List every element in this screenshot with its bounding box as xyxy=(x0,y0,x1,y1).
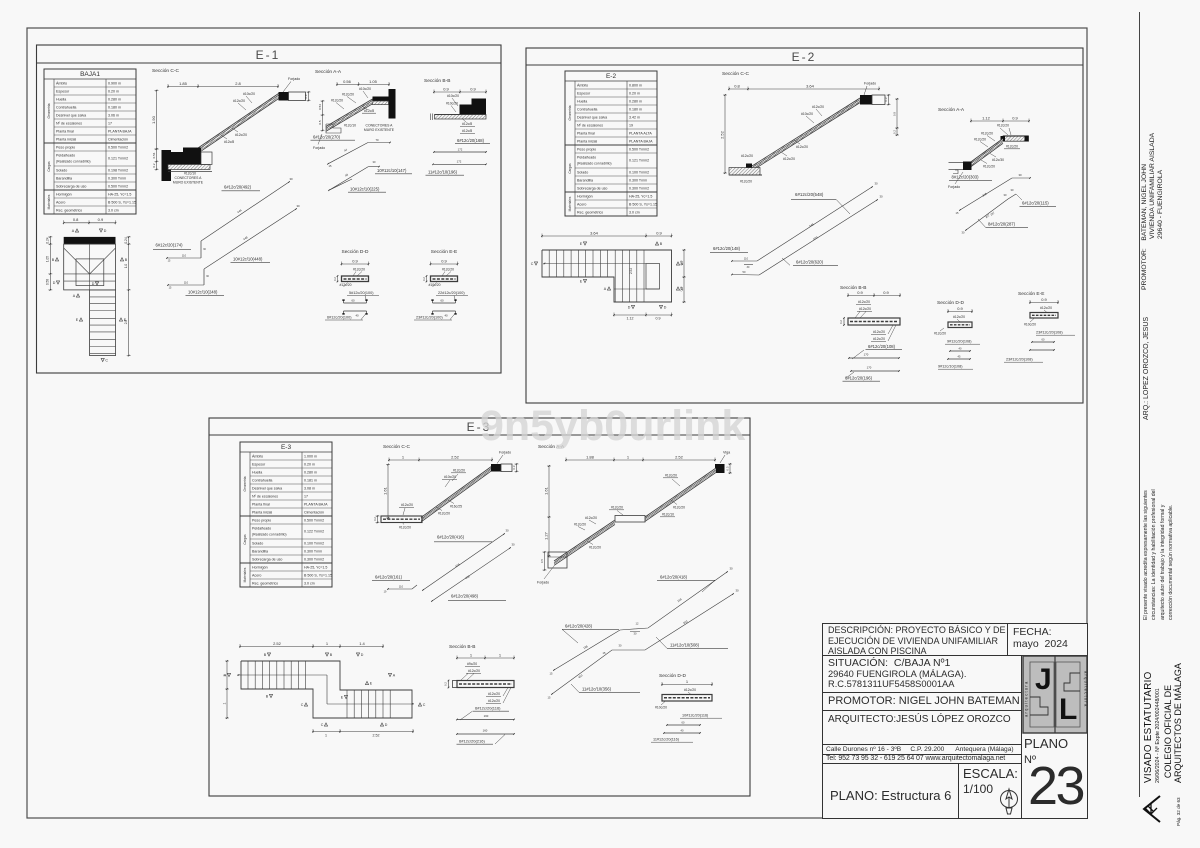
svg-text:PLANTA ALTA: PLANTA ALTA xyxy=(629,132,652,136)
svg-text:Sección C-C: Sección C-C xyxy=(383,444,410,450)
svg-text:0.9: 0.9 xyxy=(656,317,661,321)
svg-text:(Realizado con ladrillo): (Realizado con ladrillo) xyxy=(252,533,287,537)
svg-text:#12c/10: #12c/10 xyxy=(184,172,196,176)
svg-text:C: C xyxy=(105,359,108,363)
svg-text:0.100 Tn/m2: 0.100 Tn/m2 xyxy=(629,171,649,175)
svg-text:Desnivel que salva: Desnivel que salva xyxy=(252,487,282,491)
svg-text:#12c/20: #12c/20 xyxy=(983,165,995,169)
svg-text:#10c/20: #10c/20 xyxy=(359,87,371,91)
svg-text:#12c/20: #12c/20 xyxy=(468,669,480,673)
svg-text:30: 30 xyxy=(747,266,750,269)
svg-text:#12c/20: #12c/20 xyxy=(585,516,597,520)
svg-text:23#12c/20(108): 23#12c/20(108) xyxy=(1036,331,1063,335)
svg-text:1.000 m: 1.000 m xyxy=(304,455,317,459)
svg-text:0.3: 0.3 xyxy=(884,97,888,101)
svg-text:1: 1 xyxy=(686,679,689,684)
svg-text:15: 15 xyxy=(603,651,606,655)
svg-text:Rec. geométrico: Rec. geométrico xyxy=(56,209,82,213)
svg-text:Sobrecarga de uso: Sobrecarga de uso xyxy=(56,185,86,189)
svg-text:15: 15 xyxy=(548,696,551,700)
svg-text:172: 172 xyxy=(457,160,462,164)
svg-text:0.280 m: 0.280 m xyxy=(108,98,121,102)
svg-text:1.61: 1.61 xyxy=(543,486,548,495)
svg-text:60: 60 xyxy=(351,299,355,303)
svg-text:Acero: Acero xyxy=(252,574,261,578)
svg-text:0.198 Tn/m2: 0.198 Tn/m2 xyxy=(108,169,128,173)
svg-text:#12c/20: #12c/20 xyxy=(783,157,795,161)
svg-text:Geometría: Geometría xyxy=(243,476,247,491)
svg-text:40: 40 xyxy=(444,314,448,318)
svg-text:#12c/20: #12c/20 xyxy=(233,99,245,103)
svg-text:Barandilla: Barandilla xyxy=(577,179,593,183)
svg-text:6#12c/20(620): 6#12c/20(620) xyxy=(796,260,824,265)
svg-text:3.0 cm: 3.0 cm xyxy=(629,211,640,215)
svg-text:Planta final: Planta final xyxy=(577,132,595,136)
svg-text:3.0 cm: 3.0 cm xyxy=(108,209,119,213)
svg-text:0.9: 0.9 xyxy=(441,258,447,263)
svg-text:0.2: 0.2 xyxy=(839,320,843,324)
svg-text:#12c/20: #12c/20 xyxy=(981,132,993,136)
svg-text:0.900 m: 0.900 m xyxy=(108,82,121,86)
svg-text:3.42 m: 3.42 m xyxy=(629,116,640,120)
svg-text:6#12c/20(416): 6#12c/20(416) xyxy=(437,535,465,540)
svg-text:#10c/20: #10c/20 xyxy=(446,102,458,106)
svg-text:172: 172 xyxy=(458,147,463,151)
svg-text:30: 30 xyxy=(1018,173,1022,177)
svg-text:0.20 m: 0.20 m xyxy=(629,92,640,96)
svg-text:#10c/20: #10c/20 xyxy=(444,475,456,479)
svg-text:Cargas: Cargas xyxy=(47,161,51,172)
svg-text:3.06 m: 3.06 m xyxy=(108,114,119,118)
svg-text:6#12c/20(108): 6#12c/20(108) xyxy=(868,344,896,349)
svg-text:#12c/20: #12c/20 xyxy=(665,474,677,478)
svg-text:Contrahuella: Contrahuella xyxy=(56,106,76,110)
svg-text:0.300 Tn/m: 0.300 Tn/m xyxy=(304,550,322,554)
svg-text:D: D xyxy=(361,653,364,657)
svg-text:Sección B-B: Sección B-B xyxy=(449,644,475,650)
svg-text:Ámbito: Ámbito xyxy=(577,84,588,88)
svg-text:Nº de escalones: Nº de escalones xyxy=(577,124,603,128)
svg-text:Planta inicial: Planta inicial xyxy=(577,140,597,144)
svg-text:6#12c/20(174): 6#12c/20(174) xyxy=(156,243,184,248)
svg-text:Forjado: Forjado xyxy=(288,77,300,81)
svg-text:Peldañeado: Peldañeado xyxy=(577,156,596,160)
svg-text:0.9: 0.9 xyxy=(352,258,358,263)
svg-text:0.2: 0.2 xyxy=(444,682,448,686)
svg-text:10#12c/10(147): 10#12c/10(147) xyxy=(377,168,407,173)
svg-text:1: 1 xyxy=(222,702,226,704)
svg-text:A: A xyxy=(72,229,75,233)
svg-text:6#12c/20(492): 6#12c/20(492) xyxy=(224,185,252,190)
svg-text:287: 287 xyxy=(989,210,995,216)
svg-text:110: 110 xyxy=(744,256,749,260)
svg-text:0.9: 0.9 xyxy=(679,261,683,266)
svg-text:0.500 Tn/m2: 0.500 Tn/m2 xyxy=(629,148,649,152)
svg-text:1.12: 1.12 xyxy=(982,115,991,120)
svg-text:0.58: 0.58 xyxy=(46,279,50,285)
svg-text:30: 30 xyxy=(373,160,376,164)
svg-text:0.9: 0.9 xyxy=(883,290,889,295)
svg-text:Hormigón: Hormigón xyxy=(252,566,268,570)
svg-text:D: D xyxy=(628,306,631,310)
svg-text:30: 30 xyxy=(879,195,883,199)
svg-text:C: C xyxy=(321,723,324,727)
svg-text:#12c/20: #12c/20 xyxy=(673,506,685,510)
svg-text:#12c/20: #12c/20 xyxy=(859,307,871,311)
svg-text:2.52: 2.52 xyxy=(451,454,460,459)
svg-text:0.9: 0.9 xyxy=(679,287,683,292)
svg-text:1: 1 xyxy=(499,652,502,657)
svg-text:Desnivel que salva: Desnivel que salva xyxy=(56,114,86,118)
svg-text:11#12c/10(356): 11#12c/10(356) xyxy=(582,687,612,692)
svg-text:E: E xyxy=(341,696,344,700)
svg-text:#12c/20: #12c/20 xyxy=(399,526,411,530)
svg-text:0.3: 0.3 xyxy=(725,466,729,470)
svg-text:3.64: 3.64 xyxy=(590,230,599,235)
svg-text:PLANTA BAJA: PLANTA BAJA xyxy=(108,130,132,134)
svg-text:Sección B-B: Sección B-B xyxy=(424,78,450,84)
svg-text:1: 1 xyxy=(325,734,327,738)
svg-text:60: 60 xyxy=(440,299,444,303)
svg-text:Sección E-E: Sección E-E xyxy=(431,249,457,255)
svg-text:Forjado: Forjado xyxy=(864,82,876,86)
svg-text:0.9: 0.9 xyxy=(656,230,662,235)
svg-text:Peso propio: Peso propio xyxy=(577,148,596,152)
svg-text:1.27: 1.27 xyxy=(543,531,548,540)
svg-text:#12c/20: #12c/20 xyxy=(974,138,986,142)
svg-text:Cimentación: Cimentación xyxy=(304,511,324,515)
svg-text:#12c/10: #12c/10 xyxy=(662,513,674,517)
svg-text:0.500 Tn/m2: 0.500 Tn/m2 xyxy=(108,185,128,189)
svg-text:0.2: 0.2 xyxy=(152,163,156,168)
svg-text:#12c/20: #12c/20 xyxy=(331,99,343,103)
svg-text:12: 12 xyxy=(636,622,639,626)
svg-text:0.100 Tn/m2: 0.100 Tn/m2 xyxy=(304,542,324,546)
svg-text:B: B xyxy=(52,258,55,262)
svg-text:6#12c/20(168): 6#12c/20(168) xyxy=(457,138,485,143)
svg-text:E-1: E-1 xyxy=(256,48,281,62)
svg-text:Rec. geométrico: Rec. geométrico xyxy=(252,582,278,586)
svg-text:0.9: 0.9 xyxy=(470,86,476,91)
svg-text:2.8: 2.8 xyxy=(235,81,241,86)
svg-text:Barandilla: Barandilla xyxy=(252,550,268,554)
svg-text:1: 1 xyxy=(470,652,473,657)
svg-text:110: 110 xyxy=(182,253,187,257)
svg-text:0.300 Tn/m: 0.300 Tn/m xyxy=(629,179,647,183)
svg-text:3.08 m: 3.08 m xyxy=(304,487,315,491)
svg-text:#9c/20: #9c/20 xyxy=(467,662,477,666)
svg-text:B 500 S, Ys=1.15: B 500 S, Ys=1.15 xyxy=(108,201,136,205)
svg-text:B 500 S, Ys=1.15: B 500 S, Ys=1.15 xyxy=(304,574,332,578)
svg-text:0.121 Tn/m2: 0.121 Tn/m2 xyxy=(108,157,128,161)
svg-text:C: C xyxy=(423,703,426,707)
svg-text:1.0: 1.0 xyxy=(124,264,128,269)
svg-text:0.54: 0.54 xyxy=(152,152,156,158)
svg-text:#12c/20: #12c/20 xyxy=(453,469,465,473)
svg-text:D: D xyxy=(385,723,388,727)
svg-text:Solado: Solado xyxy=(56,169,67,173)
svg-text:0.9: 0.9 xyxy=(443,86,449,91)
svg-text:(Realizado con ladrillo): (Realizado con ladrillo) xyxy=(577,162,612,166)
svg-text:11#12c/10(196): 11#12c/10(196) xyxy=(428,170,458,175)
svg-text:#12c/20: #12c/20 xyxy=(438,512,450,516)
svg-text:0.8: 0.8 xyxy=(734,83,740,88)
svg-text:1.4: 1.4 xyxy=(359,641,365,646)
svg-text:B 500 S, Ys=1.15: B 500 S, Ys=1.15 xyxy=(629,203,657,207)
svg-text:arquitectura: arquitectura xyxy=(1083,671,1088,708)
svg-text:Cimentación: Cimentación xyxy=(108,138,128,142)
svg-text:48: 48 xyxy=(344,172,349,177)
svg-text:1.85: 1.85 xyxy=(179,81,188,86)
svg-text:444: 444 xyxy=(236,208,242,214)
svg-text:9#12c/20(108): 9#12c/20(108) xyxy=(947,340,972,344)
svg-text:1.12: 1.12 xyxy=(627,317,634,321)
svg-text:6#12c/20(196): 6#12c/20(196) xyxy=(845,376,873,381)
svg-text:Peso propio: Peso propio xyxy=(56,146,75,150)
svg-text:#12c/20: #12c/20 xyxy=(812,105,824,109)
svg-text:1: 1 xyxy=(222,674,226,676)
svg-text:0.2: 0.2 xyxy=(422,277,426,281)
svg-text:Forjado: Forjado xyxy=(499,451,511,455)
svg-text:Planta final: Planta final xyxy=(252,503,270,507)
svg-text:30: 30 xyxy=(634,632,637,636)
svg-text:Planta inicial: Planta inicial xyxy=(56,138,76,142)
svg-text:1: 1 xyxy=(402,454,405,459)
svg-text:PLANTA BAJA: PLANTA BAJA xyxy=(629,140,653,144)
svg-text:1.88: 1.88 xyxy=(586,454,595,459)
svg-text:#12c/20: #12c/20 xyxy=(741,154,753,158)
svg-text:Planta final: Planta final xyxy=(56,130,74,134)
svg-text:CONECTORES A: CONECTORES A xyxy=(366,124,394,128)
svg-text:0.24: 0.24 xyxy=(46,237,50,243)
svg-text:Huella: Huella xyxy=(252,471,262,475)
svg-text:A: A xyxy=(73,294,76,298)
svg-text:C: C xyxy=(301,703,304,707)
svg-text:620: 620 xyxy=(812,235,818,241)
svg-text:30: 30 xyxy=(729,567,733,571)
svg-text:HA-25, Yc=1.5: HA-25, Yc=1.5 xyxy=(108,193,131,197)
svg-text:Forjado: Forjado xyxy=(537,581,549,585)
svg-text:6#12c/20(498): 6#12c/20(498) xyxy=(451,594,479,599)
svg-text:8#12c/20(287): 8#12c/20(287) xyxy=(988,222,1016,227)
svg-text:Barandilla: Barandilla xyxy=(56,177,72,181)
svg-text:A: A xyxy=(604,287,607,291)
svg-text:Planta inicial: Planta inicial xyxy=(252,511,272,515)
svg-text:30: 30 xyxy=(505,529,509,533)
svg-text:0.9: 0.9 xyxy=(1041,297,1047,302)
svg-text:0.300 Tn/m2: 0.300 Tn/m2 xyxy=(629,187,649,191)
svg-text:1: 1 xyxy=(627,454,630,459)
svg-text:#12c/8: #12c/8 xyxy=(224,140,234,144)
svg-text:50: 50 xyxy=(743,270,746,274)
svg-text:0.500 Tn/m2: 0.500 Tn/m2 xyxy=(304,519,324,523)
svg-text:#12c/20: #12c/20 xyxy=(235,133,247,137)
svg-text:0.9: 0.9 xyxy=(1012,115,1018,120)
svg-text:0.9: 0.9 xyxy=(857,290,863,295)
svg-text:170: 170 xyxy=(867,365,872,369)
svg-text:30: 30 xyxy=(296,204,300,208)
svg-text:17: 17 xyxy=(304,495,308,499)
svg-text:2.52: 2.52 xyxy=(719,130,724,139)
svg-text:#12c/30: #12c/30 xyxy=(992,158,1004,162)
svg-text:#12c/20: #12c/20 xyxy=(353,268,365,272)
svg-text:6#12c/20(270): 6#12c/20(270) xyxy=(313,135,341,140)
svg-text:5#12c/20(100): 5#12c/20(100) xyxy=(349,291,374,295)
svg-text:#12c/20: #12c/20 xyxy=(1040,306,1052,310)
svg-text:Peldañeado: Peldañeado xyxy=(56,154,75,158)
svg-text:#16c/25: #16c/25 xyxy=(450,505,462,509)
svg-text:1: 1 xyxy=(326,641,329,646)
svg-text:15: 15 xyxy=(169,287,172,290)
svg-text:6#12c/20(148): 6#12c/20(148) xyxy=(713,246,741,251)
svg-text:#12c/20: #12c/20 xyxy=(873,330,885,334)
svg-text:6#12c/20(100): 6#12c/20(100) xyxy=(327,316,352,320)
svg-text:23#12c/20(108): 23#12c/20(108) xyxy=(1006,358,1033,362)
svg-text:A: A xyxy=(393,674,396,678)
svg-text:B: B xyxy=(125,258,128,262)
svg-text:#12c/20: #12c/20 xyxy=(934,332,946,336)
svg-text:0.800 m: 0.800 m xyxy=(629,84,642,88)
svg-text:30: 30 xyxy=(206,275,209,278)
svg-text:170: 170 xyxy=(864,352,869,356)
svg-text:E-3: E-3 xyxy=(281,444,292,451)
svg-text:0.9: 0.9 xyxy=(957,306,963,311)
svg-text:0.2: 0.2 xyxy=(373,517,377,521)
svg-text:30: 30 xyxy=(203,248,206,251)
svg-text:10#12c/20(116): 10#12c/20(116) xyxy=(682,714,709,718)
svg-text:PLANTA BAJA: PLANTA BAJA xyxy=(304,503,328,507)
svg-text:L: L xyxy=(1059,693,1077,726)
svg-text:#12c/8: #12c/8 xyxy=(462,122,472,126)
svg-text:60: 60 xyxy=(682,720,685,724)
svg-text:E: E xyxy=(370,682,373,686)
svg-text:#12c/20: #12c/20 xyxy=(997,124,1009,128)
svg-text:10#12c/10(225): 10#12c/10(225) xyxy=(350,187,380,192)
svg-text:#12c/20: #12c/20 xyxy=(796,145,808,149)
svg-text:#12c/20: #12c/20 xyxy=(873,337,885,341)
svg-text:Nº de escalones: Nº de escalones xyxy=(252,495,278,499)
svg-text:0.54: 0.54 xyxy=(318,104,322,110)
svg-text:40: 40 xyxy=(959,346,962,350)
svg-text:Rec. geométrico: Rec. geométrico xyxy=(577,211,603,215)
svg-text:0.5: 0.5 xyxy=(540,559,544,563)
svg-text:6#12c/20(115): 6#12c/20(115) xyxy=(1022,201,1049,206)
svg-text:Acero: Acero xyxy=(56,201,65,205)
svg-text:#12c/20: #12c/20 xyxy=(342,93,354,97)
svg-text:Sobrecarga de uso: Sobrecarga de uso xyxy=(577,187,607,191)
svg-text:J: J xyxy=(1035,663,1052,696)
svg-text:15: 15 xyxy=(956,211,959,215)
svg-text:0.3: 0.3 xyxy=(304,94,308,98)
svg-text:Solado: Solado xyxy=(577,171,588,175)
svg-text:Huella: Huella xyxy=(56,98,66,102)
svg-text:(Realizado con ladrillo): (Realizado con ladrillo) xyxy=(56,160,91,164)
svg-text:2.52: 2.52 xyxy=(629,268,633,274)
svg-text:6#12c/20(428): 6#12c/20(428) xyxy=(565,624,593,629)
svg-text:30: 30 xyxy=(1004,193,1007,197)
svg-text:23#12c/20(100): 23#12c/20(100) xyxy=(416,316,443,320)
svg-text:D: D xyxy=(53,281,56,285)
svg-text:0.56: 0.56 xyxy=(343,79,352,84)
svg-text:30: 30 xyxy=(1011,188,1014,192)
svg-text:Sección C-C: Sección C-C xyxy=(152,68,179,74)
svg-text:0.122 Tn/m2: 0.122 Tn/m2 xyxy=(304,530,324,534)
svg-text:#12c/8: #12c/8 xyxy=(462,129,472,133)
svg-text:19: 19 xyxy=(384,591,387,594)
svg-text:0.24: 0.24 xyxy=(124,237,128,243)
svg-text:6#12c/20(216): 6#12c/20(216) xyxy=(459,739,485,744)
svg-text:44: 44 xyxy=(343,147,348,152)
svg-text:B: B xyxy=(264,653,267,657)
svg-text:0.3: 0.3 xyxy=(512,465,516,469)
svg-text:22#12c/20(100): 22#12c/20(100) xyxy=(438,291,465,295)
svg-text:#10c/20: #10c/20 xyxy=(655,706,667,710)
svg-text:Materiales: Materiales xyxy=(47,194,51,209)
svg-text:160: 160 xyxy=(484,714,489,718)
svg-text:arquitectura: arquitectura xyxy=(1023,680,1028,717)
svg-text:#12c/20: #12c/20 xyxy=(611,506,623,510)
svg-text:Acero: Acero xyxy=(577,203,586,207)
svg-text:CONECTORES A: CONECTORES A xyxy=(175,176,203,180)
svg-text:166: 166 xyxy=(676,597,682,603)
svg-text:0.121 Tn/m2: 0.121 Tn/m2 xyxy=(629,159,649,163)
svg-text:0.300 Tn/m: 0.300 Tn/m xyxy=(108,177,126,181)
svg-text:17: 17 xyxy=(108,122,112,126)
svg-text:548: 548 xyxy=(808,222,814,228)
svg-text:11#12c/10(508): 11#12c/10(508) xyxy=(670,643,700,648)
svg-text:B: B xyxy=(266,695,269,699)
svg-text:40: 40 xyxy=(355,314,359,318)
svg-text:30: 30 xyxy=(735,589,739,593)
svg-text:6#12c/20(161): 6#12c/20(161) xyxy=(375,575,403,580)
svg-text:D: D xyxy=(104,229,107,233)
svg-text:451: 451 xyxy=(577,673,583,679)
svg-text:Solado: Solado xyxy=(252,542,263,546)
svg-text:Ámbito: Ámbito xyxy=(56,82,67,86)
svg-text:#12c/20: #12c/20 xyxy=(574,523,586,527)
svg-text:#12c/20: #12c/20 xyxy=(1006,145,1018,149)
svg-text:#12c/20: #12c/20 xyxy=(401,503,413,507)
svg-text:Materiales: Materiales xyxy=(568,196,572,211)
svg-text:0.20 m: 0.20 m xyxy=(108,90,119,94)
svg-text:MURO EXISTENTE: MURO EXISTENTE xyxy=(173,181,204,185)
svg-text:318: 318 xyxy=(981,191,987,197)
svg-text:1.90: 1.90 xyxy=(151,115,156,124)
svg-text:Forjado: Forjado xyxy=(948,185,960,189)
svg-text:40: 40 xyxy=(681,728,684,732)
svg-text:6#12c/20(418): 6#12c/20(418) xyxy=(660,575,688,580)
svg-text:10#12c/10(448): 10#12c/10(448) xyxy=(233,257,263,262)
svg-text:160: 160 xyxy=(483,728,488,732)
svg-text:0.9: 0.9 xyxy=(98,217,104,222)
svg-text:Contrahuella: Contrahuella xyxy=(252,479,272,483)
svg-text:0.5: 0.5 xyxy=(318,120,322,125)
svg-text:Cargas: Cargas xyxy=(568,163,572,174)
svg-text:Sección D-D: Sección D-D xyxy=(342,249,369,255)
svg-text:B: B xyxy=(330,653,333,657)
svg-text:15: 15 xyxy=(329,164,332,168)
svg-text:B: B xyxy=(660,242,663,246)
svg-text:9#12c/10(108): 9#12c/10(108) xyxy=(938,365,963,369)
svg-text:Peso propio: Peso propio xyxy=(252,519,271,523)
svg-text:0.300 Tn/m2: 0.300 Tn/m2 xyxy=(304,558,324,562)
svg-text:Hormigón: Hormigón xyxy=(577,195,593,199)
svg-text:1.05: 1.05 xyxy=(46,256,50,262)
svg-text:Sección D-D: Sección D-D xyxy=(659,673,686,679)
svg-text:Cargas: Cargas xyxy=(243,534,247,545)
svg-text:#12c/20: #12c/20 xyxy=(684,688,696,692)
svg-text:30: 30 xyxy=(874,182,878,186)
